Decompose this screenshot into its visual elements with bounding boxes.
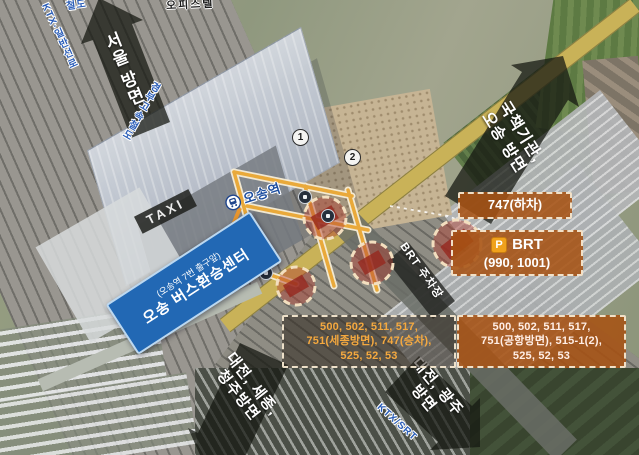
train-icon bbox=[223, 192, 243, 212]
callout-747-alight: 747(하차) bbox=[458, 192, 572, 219]
callout-routes-airport: 500, 502, 511, 517, 751(공항방면), 515-1(2),… bbox=[457, 315, 626, 368]
station-exit-icon bbox=[298, 190, 312, 204]
marker-2: 2 bbox=[344, 149, 361, 166]
parking-icon: P bbox=[491, 237, 507, 253]
brt-callout-row: P BRT bbox=[458, 235, 576, 255]
routes-sejong-line1: 500, 502, 511, 517, bbox=[289, 320, 449, 334]
routes-airport-line3: 525, 52, 53 bbox=[464, 349, 619, 363]
station-exit-icon bbox=[321, 209, 335, 223]
routes-airport-line1: 500, 502, 511, 517, bbox=[464, 320, 619, 334]
callout-brt-stop: P BRT (990, 1001) bbox=[451, 230, 583, 276]
callout-routes-sejong: 500, 502, 511, 517, 751(세종방면), 747(승차), … bbox=[282, 315, 456, 368]
routes-sejong-line3: 525, 52, 53 bbox=[289, 349, 449, 363]
routes-airport-line2: 751(공항방면), 515-1(2), bbox=[464, 334, 619, 348]
osong-station-transit-map: 철도 오피스텔 KTX·일반선로 경부고속철도 KTX/SRT 서울 방면 국책… bbox=[0, 0, 639, 455]
brt-name: BRT bbox=[512, 235, 543, 255]
routes-sejong-line2: 751(세종방면), 747(승차), bbox=[289, 334, 449, 348]
brt-route-numbers: (990, 1001) bbox=[458, 255, 576, 272]
marker-1: 1 bbox=[292, 129, 309, 146]
